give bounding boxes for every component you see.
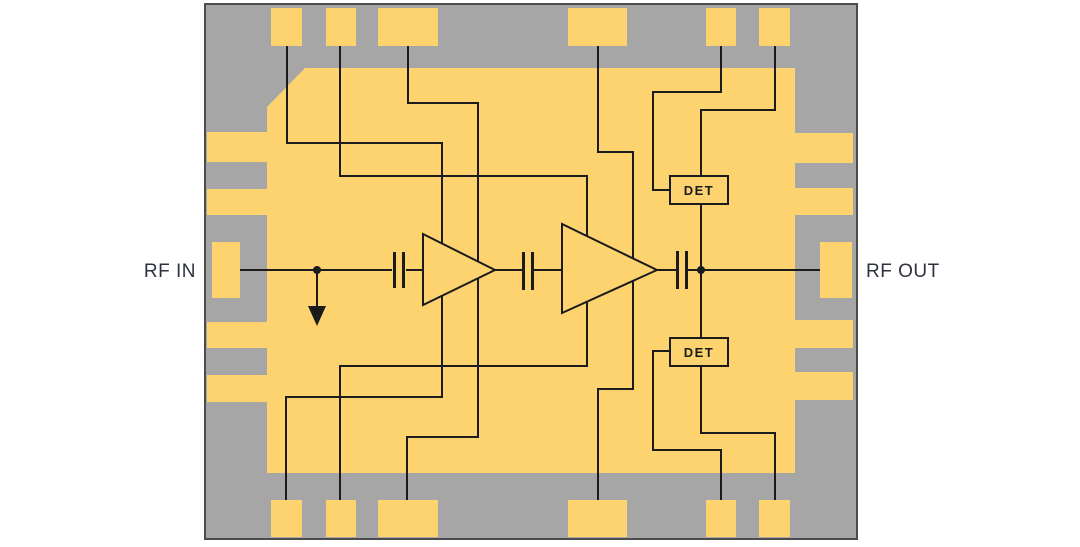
ground-strip-right-3 — [794, 320, 853, 348]
pad-top-6 — [759, 8, 790, 46]
rf-out-pad — [820, 242, 852, 298]
ground-strip-left-4 — [207, 375, 268, 402]
pad-top-3 — [378, 8, 438, 46]
detector-2-label: DET — [684, 345, 715, 360]
pad-bottom-4 — [568, 500, 627, 537]
ground-strip-right-1 — [794, 133, 853, 163]
ground-strip-right-2 — [794, 188, 853, 215]
ground-strip-right-4 — [794, 372, 853, 400]
pad-top-4 — [568, 8, 627, 46]
ground-strip-left-1 — [207, 132, 268, 162]
pad-bottom-2 — [326, 500, 356, 537]
detector-1-label: DET — [684, 183, 715, 198]
pad-top-2 — [326, 8, 356, 46]
pad-top-1 — [271, 8, 302, 46]
pad-bottom-6 — [759, 500, 790, 537]
pad-bottom-1 — [271, 500, 302, 537]
pad-bottom-5 — [706, 500, 736, 537]
rf-in-label: RF IN — [144, 261, 196, 282]
rf-in-pad — [212, 242, 240, 298]
rf-out-label: RF OUT — [866, 261, 940, 282]
ground-strip-left-2 — [207, 189, 268, 215]
pad-bottom-3 — [378, 500, 438, 537]
junction-dot-output — [697, 266, 705, 274]
ground-strip-left-3 — [207, 322, 268, 348]
diagram-canvas: DET DET RF IN RF OUT — [0, 0, 1080, 542]
pad-top-5 — [706, 8, 736, 46]
mmic-block-diagram: DET DET RF IN RF OUT — [0, 0, 1080, 542]
junction-dot-input — [313, 266, 321, 274]
